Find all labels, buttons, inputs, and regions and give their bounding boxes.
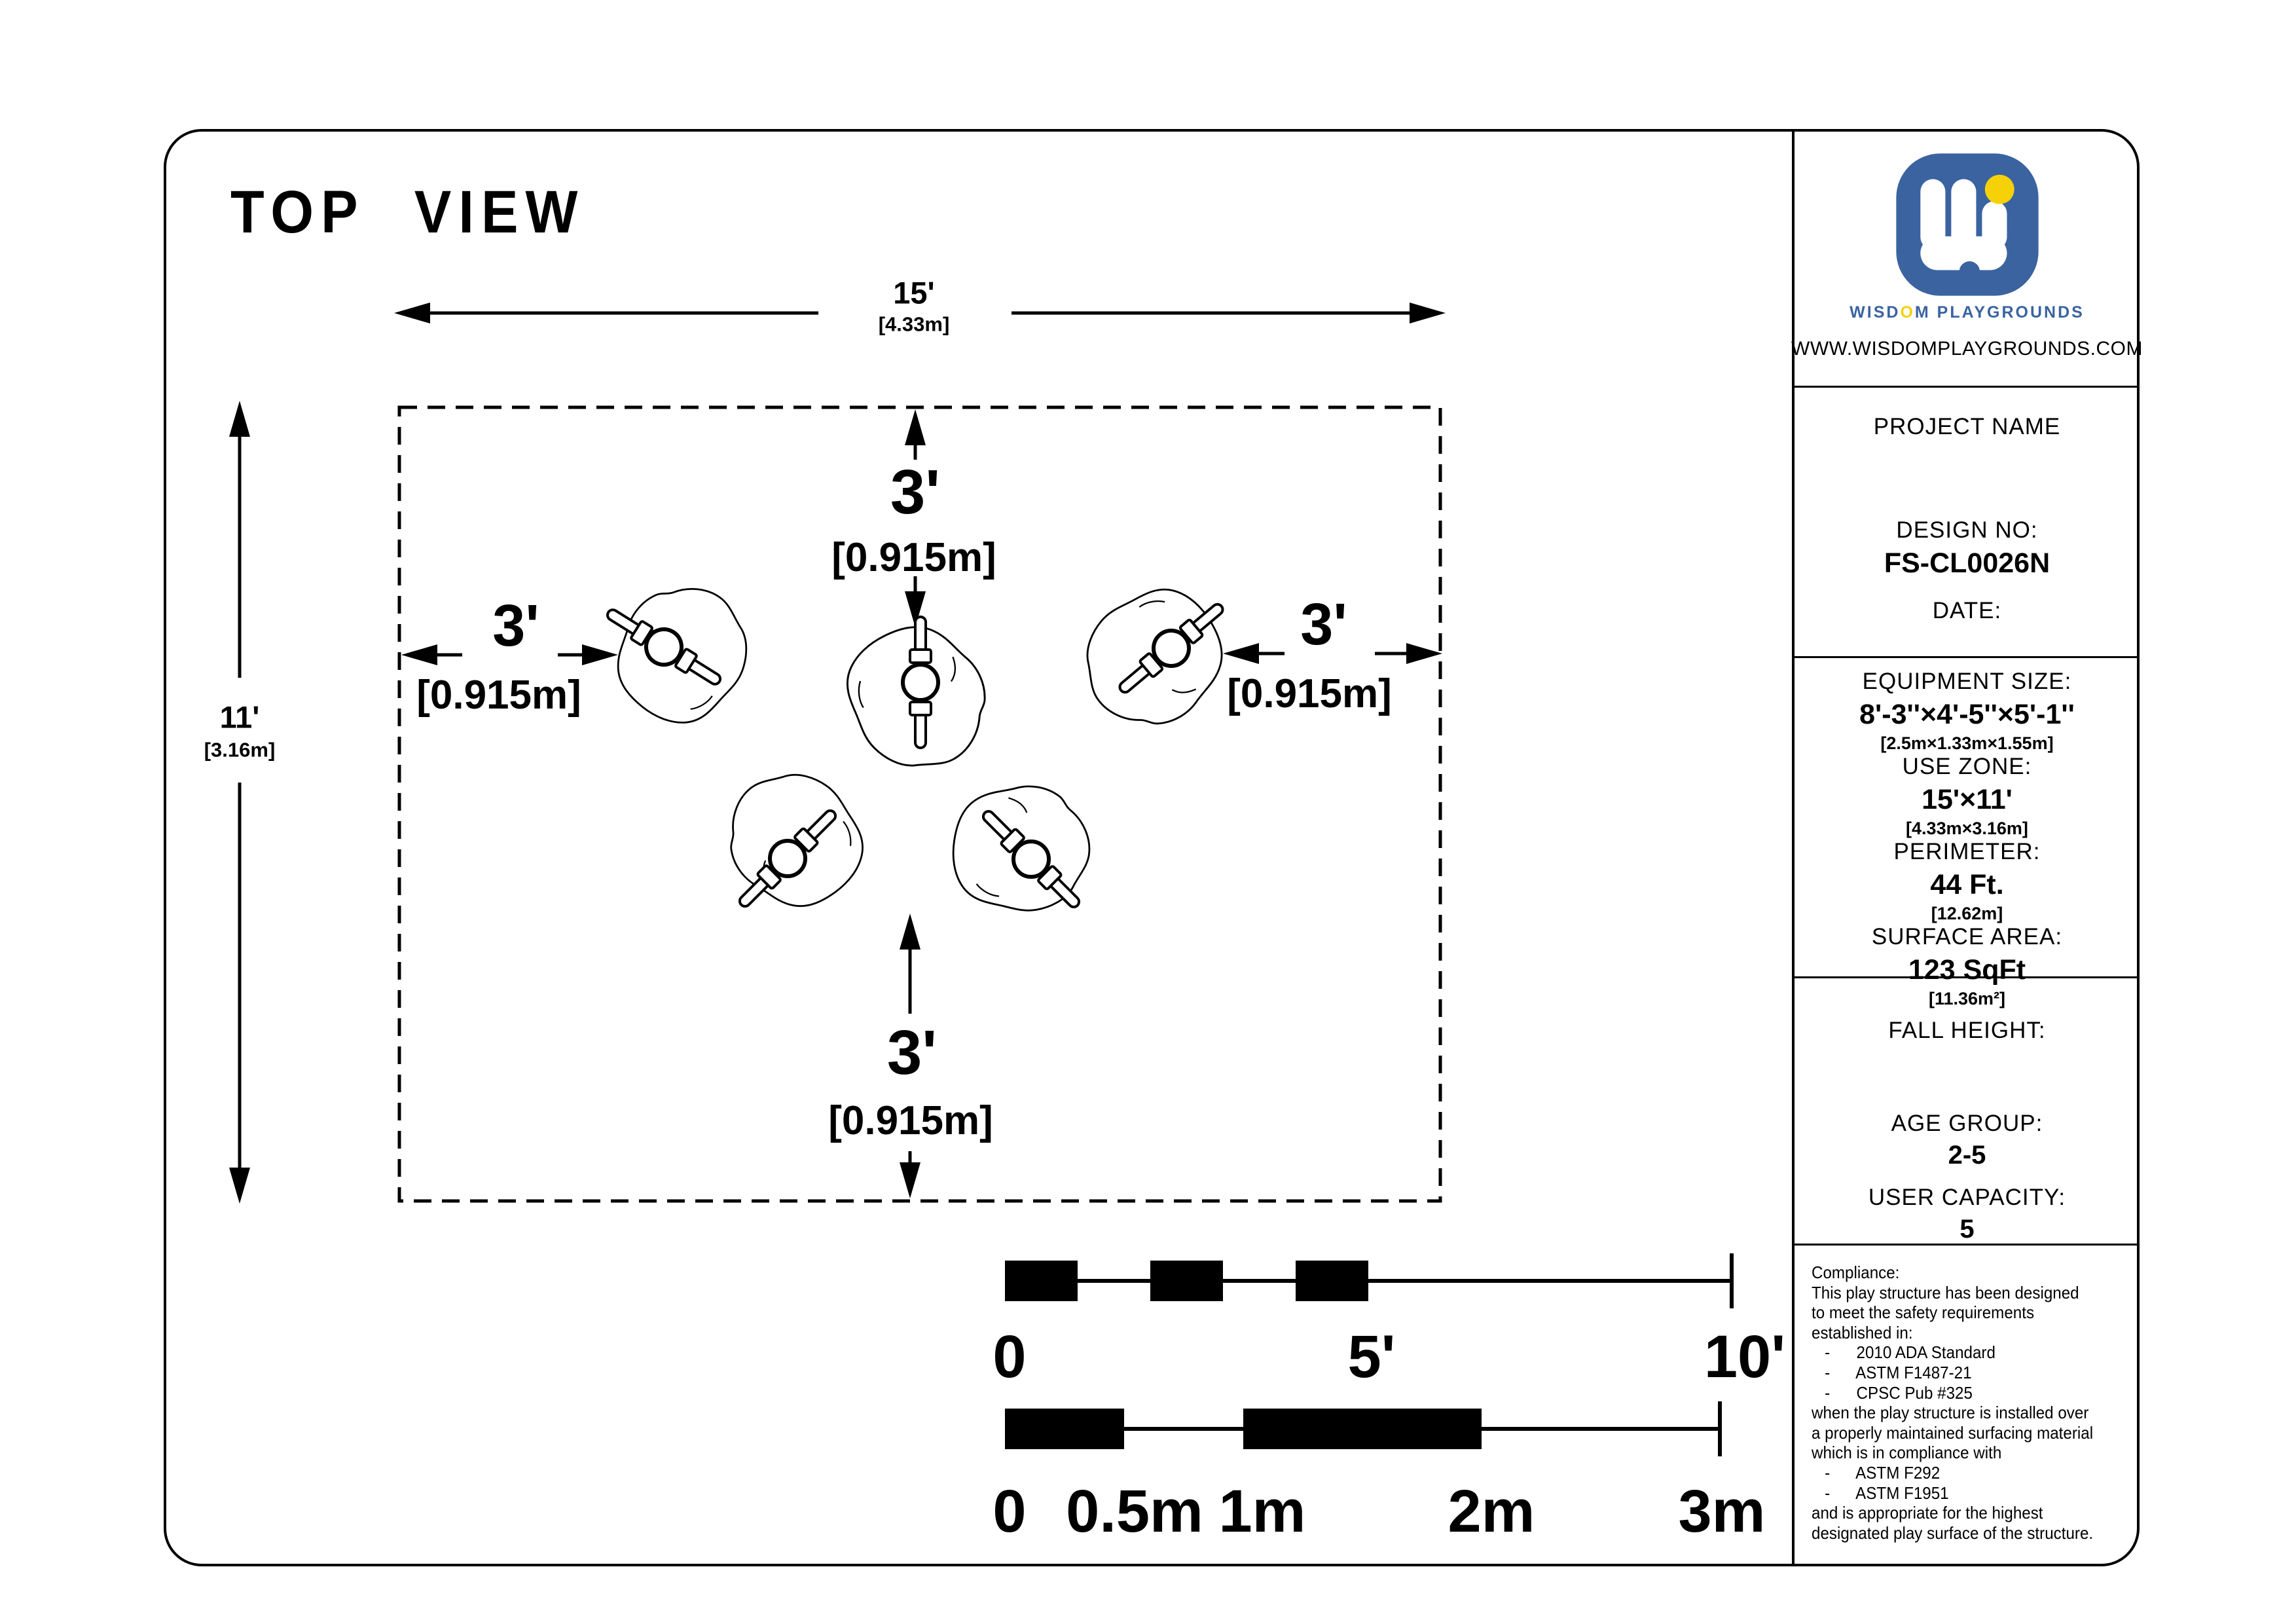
compliance-line: a properly maintained surfacing material — [1812, 1423, 2093, 1443]
height-dim-feet: 11' — [220, 702, 260, 733]
meter-scale-label-0: 0 — [993, 1481, 1026, 1541]
clearance-top-meters: [0.915m] — [831, 538, 996, 578]
boulder-icon — [599, 589, 746, 722]
compliance-panel: Compliance: This play structure has been… — [1795, 1246, 2140, 1566]
design-no-label: DESIGN NO: — [1896, 517, 2037, 544]
title-block-sidebar: WISDOM PLAYGROUNDS WWW.WISDOMPLAYGROUNDS… — [1792, 129, 2140, 1566]
feet-scale-label-10: 10' — [1704, 1327, 1785, 1387]
boulder-icon — [716, 761, 878, 919]
age-group-value: 2-5 — [1948, 1141, 1986, 1170]
spec-equipment-size: EQUIPMENT SIZE: 8'-3''×4'-5''×5'-1'' [2.… — [1859, 669, 2075, 754]
compliance-line: This play structure has been designed — [1812, 1283, 2079, 1303]
specs-panel: EQUIPMENT SIZE: 8'-3''×4'-5''×5'-1'' [2.… — [1795, 658, 2140, 978]
compliance-line: - 2010 ADA Standard — [1812, 1342, 1995, 1363]
clearance-top-feet: 3' — [890, 461, 940, 524]
user-capacity-label: USER CAPACITY: — [1868, 1185, 2066, 1211]
spec-perimeter: PERIMETER: 44 Ft. [12.62m] — [1894, 839, 2041, 924]
safety-panel: FALL HEIGHT: AGE GROUP: 2-5 USER CAPACIT… — [1795, 978, 2140, 1246]
meter-scale-label-05: 0.5m — [1066, 1481, 1203, 1541]
user-capacity-value: 5 — [1959, 1215, 1974, 1244]
meter-scale-label-3: 3m — [1679, 1481, 1766, 1541]
spec-use-zone: USE ZONE: 15'×11' [4.33m×3.16m] — [1903, 754, 2032, 839]
meter-scale-bar — [1005, 1401, 1720, 1456]
clearance-left-feet: 3' — [492, 597, 539, 655]
fall-height-label: FALL HEIGHT: — [1888, 1018, 2045, 1044]
clearance-left-meters: [0.915m] — [416, 675, 581, 716]
feet-scale-label-0: 0 — [993, 1327, 1026, 1387]
compliance-line: established in: — [1812, 1323, 1913, 1343]
compliance-line: when the play structure is installed ove… — [1812, 1403, 2088, 1423]
project-name-label: PROJECT NAME — [1874, 414, 2061, 440]
playground-drawing-sheet: { "title": "TOP VIEW", "drawing": { "dim… — [0, 0, 2296, 1624]
compliance-line: and is appropriate for the highest — [1812, 1503, 2043, 1523]
compliance-line: - ASTM F1487-21 — [1812, 1363, 1972, 1383]
brand-website: WWW.WISDOMPLAYGROUNDS.COM — [1791, 338, 2143, 360]
width-dim-feet: 15' — [893, 278, 934, 308]
height-dimension-arrow — [229, 401, 250, 1204]
boulder-icon — [1069, 570, 1239, 743]
boulder-icon — [928, 760, 1110, 939]
boulder-icon — [823, 606, 1008, 788]
date-label: DATE: — [1933, 598, 2001, 624]
compliance-line: Compliance: — [1812, 1263, 1899, 1283]
wisdom-logo-icon — [1894, 151, 2041, 298]
meter-scale-label-1: 1m — [1219, 1481, 1306, 1541]
feet-scale-label-5: 5' — [1347, 1327, 1395, 1387]
width-dim-meters: [4.33m] — [879, 314, 950, 335]
compliance-line: - CPSC Pub #325 — [1812, 1383, 1973, 1403]
clearance-bottom-meters: [0.915m] — [828, 1101, 993, 1141]
compliance-line: designated play surface of the structure… — [1812, 1523, 2093, 1543]
design-no-value: FS-CL0026N — [1884, 547, 2050, 580]
compliance-line: to meet the safety requirements — [1812, 1302, 2034, 1323]
brand-name: WISDOM PLAYGROUNDS — [1850, 303, 2085, 322]
clearance-bottom-feet: 3' — [887, 1022, 937, 1084]
height-dim-meters: [3.16m] — [204, 740, 276, 760]
meter-scale-label-2: 2m — [1448, 1481, 1535, 1541]
clearance-right-feet: 3' — [1300, 595, 1347, 654]
compliance-line: which is in compliance with — [1812, 1443, 2001, 1463]
age-group-label: AGE GROUP: — [1891, 1111, 2043, 1137]
clearance-right-meters: [0.915m] — [1227, 674, 1392, 714]
feet-scale-bar — [1005, 1253, 1732, 1308]
compliance-line: - ASTM F1951 — [1812, 1483, 1949, 1504]
compliance-line: - ASTM F292 — [1812, 1463, 1940, 1483]
logo-panel: WISDOM PLAYGROUNDS WWW.WISDOMPLAYGROUNDS… — [1795, 129, 2140, 388]
project-panel: PROJECT NAME DESIGN NO: FS-CL0026N DATE: — [1795, 388, 2140, 658]
